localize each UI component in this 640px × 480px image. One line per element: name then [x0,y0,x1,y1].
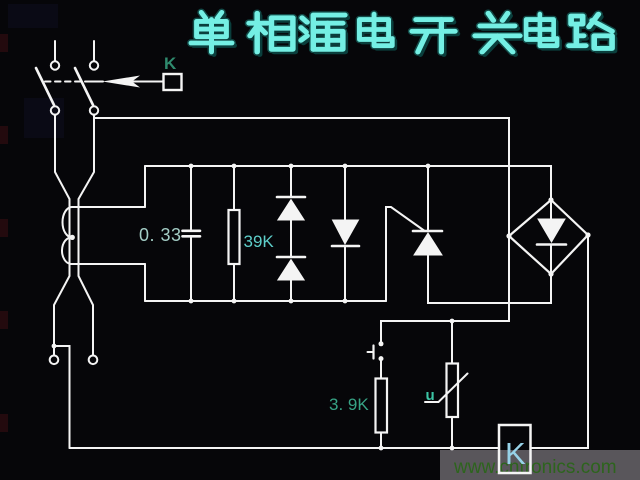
svg-text:www.cntronics.com: www.cntronics.com [453,457,617,478]
svg-text:K: K [164,54,177,73]
svg-text:u: u [426,387,435,404]
svg-text:3. 9K: 3. 9K [329,395,369,414]
svg-text:0. 33: 0. 33 [139,225,182,245]
svg-text:39K: 39K [244,232,275,251]
svg-text:K: K [505,436,526,471]
